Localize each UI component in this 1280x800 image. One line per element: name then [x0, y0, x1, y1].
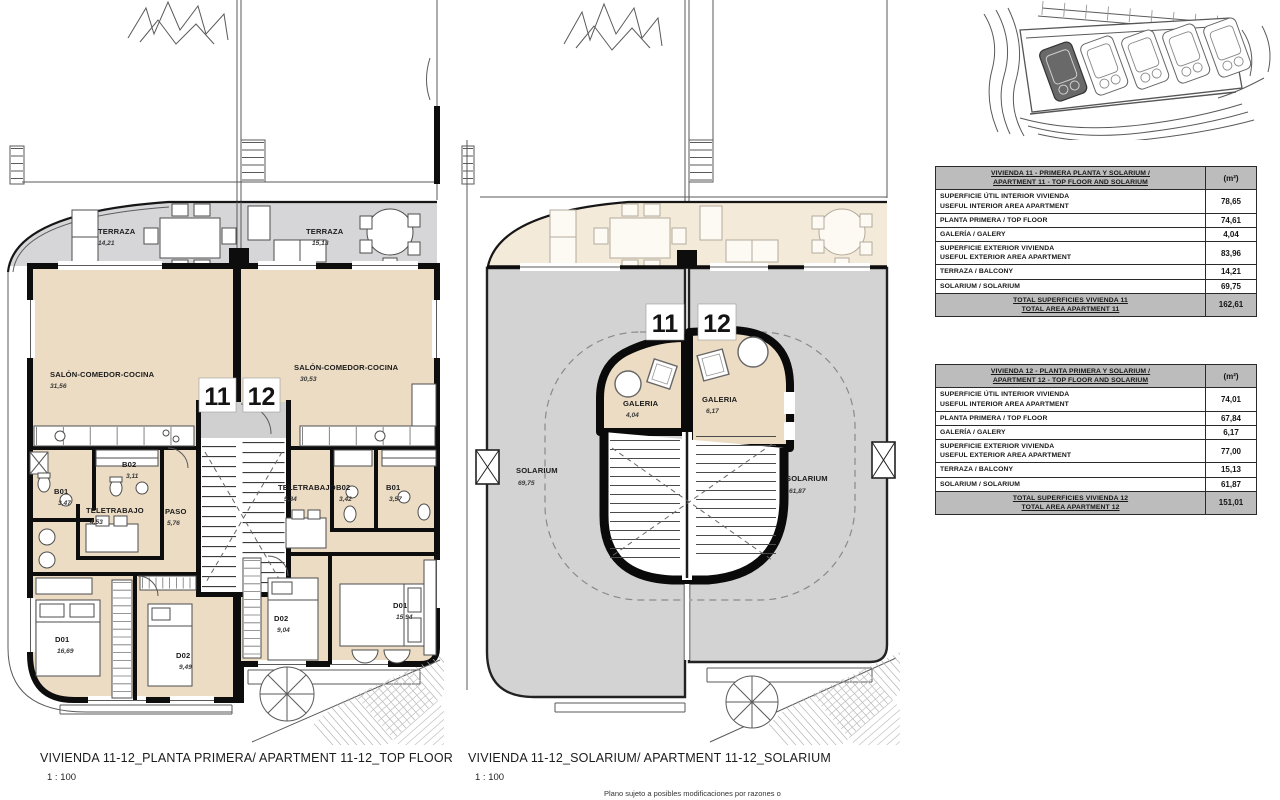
room-area-d02-11: 9,49 [179, 664, 192, 671]
room-label-teletrabajo-12: TELETRABAJO [278, 483, 336, 492]
scale-solarium: 1 : 100 [475, 772, 504, 783]
room-area-salon-12: 30,53 [300, 376, 317, 383]
exterior-stairs [10, 140, 265, 184]
room-area-b02-11: 3,11 [126, 473, 139, 480]
row-value: 69,75 [1206, 279, 1257, 293]
room-label-teletrabajo-11: TELETRABAJO [86, 506, 144, 515]
party-wall-end [677, 250, 697, 266]
scale-top-floor: 1 : 100 [47, 772, 76, 783]
row-label: SOLARIUM / SOLARIUM [940, 480, 1201, 489]
skylight-round-11 [615, 371, 641, 397]
room-label-d01-11: D01 [55, 635, 70, 644]
solarium-plan: 11 12 GALERIA 4,04 GALERIA 6,17 SOLARIUM… [460, 0, 920, 745]
row-label: USEFUL INTERIOR AREA APARTMENT [940, 202, 1201, 211]
boundary-wall-stub [434, 106, 440, 184]
room-area-paso-11: 5,76 [167, 520, 180, 527]
row-value: 74,01 [1206, 388, 1257, 411]
table-row: TERRAZA / BALCONY 15,13 [936, 463, 1257, 477]
row-label: TERRAZA / BALCONY [940, 267, 1201, 276]
shaft-marker [30, 452, 48, 474]
row-label: USEFUL INTERIOR AREA APARTMENT [940, 400, 1201, 409]
table-title-line2: APARTMENT 12 - TOP FLOOR AND SOLARIUM [940, 376, 1201, 385]
row-label: USEFUL EXTERIOR AREA APARTMENT [940, 451, 1201, 460]
table-row: SUPERFICIE ÚTIL INTERIOR VIVIENDAUSEFUL … [936, 190, 1257, 213]
row-value: 4,04 [1206, 227, 1257, 241]
unit-header: (m²) [1206, 167, 1257, 190]
palm-tree [564, 4, 662, 50]
room-label-solarium-11: SOLARIUM [516, 466, 558, 475]
total-label-line1: TOTAL SUPERFICIES VIVIENDA 11 [940, 296, 1201, 305]
caption-top-floor: VIVIENDA 11-12_PLANTA PRIMERA/ APARTMENT… [40, 751, 453, 765]
room-area-terraza-12: 15,13 [312, 240, 329, 247]
row-value: 14,21 [1206, 265, 1257, 279]
room-area-teletrabajo-11: 4,53 [89, 519, 103, 526]
table-title-line1: VIVIENDA 11 - PRIMERA PLANTA Y SOLARIUM … [940, 169, 1201, 178]
row-label: GALERÍA / GALERY [940, 428, 1201, 437]
caption-solarium: VIVIENDA 11-12_SOLARIUM/ APARTMENT 11-12… [468, 751, 831, 765]
row-value: 67,84 [1206, 411, 1257, 425]
room-area-d01-12: 15,94 [396, 614, 413, 621]
room-area-b01-11: 3,47 [58, 500, 71, 507]
room-label-paso-11: PASO [165, 507, 187, 516]
room-label-solarium-12: SOLARIUM [786, 474, 828, 483]
total-value: 162,61 [1206, 293, 1257, 316]
table-row: PLANTA PRIMERA / TOP FLOOR 74,61 [936, 213, 1257, 227]
row-value: 61,87 [1206, 477, 1257, 491]
table-row: GALERÍA / GALERY 4,04 [936, 227, 1257, 241]
garden-tree [260, 667, 314, 721]
row-value: 83,96 [1206, 242, 1257, 265]
row-label: PLANTA PRIMERA / TOP FLOOR [940, 216, 1201, 225]
area-table-apartment-12: VIVIENDA 12 - PLANTA PRIMERA Y SOLARIUM … [935, 364, 1257, 515]
total-value: 151,01 [1206, 491, 1257, 514]
skylight-round-12 [738, 337, 768, 367]
row-value: 6,17 [1206, 425, 1257, 439]
row-value: 15,13 [1206, 463, 1257, 477]
room-label-b02-11: B02 [122, 460, 136, 469]
row-label: SUPERFICIE EXTERIOR VIVIENDA [940, 442, 1201, 451]
kitchen-counter-11 [34, 426, 194, 446]
galeria-structure [600, 330, 795, 448]
room-area-b02-12: 3,42 [339, 496, 352, 503]
room-label-d01-12: D01 [393, 601, 408, 610]
room-label-salon-12: SALÓN-COMEDOR-COCINA [294, 363, 399, 372]
table-row: SOLARIUM / SOLARIUM 69,75 [936, 279, 1257, 293]
garden-tree [726, 676, 778, 728]
room-area-salon-11: 31,56 [50, 383, 67, 390]
table-title: VIVIENDA 11 - PRIMERA PLANTA Y SOLARIUM … [936, 167, 1206, 190]
total-label-line2: TOTAL AREA APARTMENT 11 [940, 305, 1201, 314]
table-title: VIVIENDA 12 - PLANTA PRIMERA Y SOLARIUM … [936, 365, 1206, 388]
room-area-d02-12: 9,04 [277, 627, 290, 634]
unit-header: (m²) [1206, 365, 1257, 388]
room-label-galeria-12: GALERIA [702, 395, 738, 404]
total-label-line1: TOTAL SUPERFICIES VIVIENDA 12 [940, 494, 1201, 503]
table-row: SOLARIUM / SOLARIUM 61,87 [936, 477, 1257, 491]
row-value: 77,00 [1206, 440, 1257, 463]
room-label-b02-12: B02 [336, 483, 350, 492]
room-area-d01-11: 16,69 [57, 648, 74, 655]
room-area-terraza-11: 14,21 [98, 240, 115, 247]
room-label-d02-12: D02 [274, 614, 288, 623]
row-label: SOLARIUM / SOLARIUM [940, 282, 1201, 291]
room-area-galeria-12: 6,17 [706, 408, 719, 415]
room-label-d02-11: D02 [176, 651, 190, 660]
room-area-teletrabajo-12: 5,34 [284, 496, 297, 503]
row-label: TERRAZA / BALCONY [940, 465, 1201, 474]
galeria-window [784, 392, 795, 414]
disclaimer-note: Plano sujeto a posibles modificaciones p… [604, 789, 781, 798]
row-label: SUPERFICIE ÚTIL INTERIOR VIVIENDA [940, 192, 1201, 201]
galeria-window [784, 422, 795, 440]
table-title-line2: APARTMENT 11 - TOP FLOOR AND SOLARIUM [940, 178, 1201, 187]
site-location-map [980, 0, 1280, 140]
room-area-solarium-11: 69,75 [518, 480, 535, 487]
row-label: SUPERFICIE EXTERIOR VIVIENDA [940, 244, 1201, 253]
table-title-line1: VIVIENDA 12 - PLANTA PRIMERA Y SOLARIUM … [940, 367, 1201, 376]
row-label: USEFUL EXTERIOR AREA APARTMENT [940, 253, 1201, 262]
table-row: TERRAZA / BALCONY 14,21 [936, 265, 1257, 279]
room-area-galeria-11: 4,04 [625, 412, 639, 419]
room-area-b01-12: 3,57 [389, 496, 402, 503]
palm-tree [128, 2, 228, 44]
area-table-apartment-11: VIVIENDA 11 - PRIMERA PLANTA Y SOLARIUM … [935, 166, 1257, 317]
row-value: 74,61 [1206, 213, 1257, 227]
row-label: SUPERFICIE ÚTIL INTERIOR VIVIENDA [940, 390, 1201, 399]
unit-badge-11: 11 [652, 310, 679, 338]
table-total-row: TOTAL SUPERFICIES VIVIENDA 12 TOTAL AREA… [936, 491, 1257, 514]
row-label: GALERÍA / GALERY [940, 230, 1201, 239]
unit-badge-11: 11 [204, 383, 231, 411]
row-label: PLANTA PRIMERA / TOP FLOOR [940, 414, 1201, 423]
table-row: SUPERFICIE EXTERIOR VIVIENDAUSEFUL EXTER… [936, 242, 1257, 265]
stairwell [604, 432, 784, 580]
room-label-b01-11: B01 [54, 487, 69, 496]
room-label-galeria-11: GALERIA [623, 399, 659, 408]
table-row: SUPERFICIE ÚTIL INTERIOR VIVIENDAUSEFUL … [936, 388, 1257, 411]
table-row: SUPERFICIE EXTERIOR VIVIENDAUSEFUL EXTER… [936, 440, 1257, 463]
table-row: GALERÍA / GALERY 6,17 [936, 425, 1257, 439]
room-label-salon-11: SALÓN-COMEDOR-COCINA [50, 370, 155, 379]
top-floor-plan: 11 12 TERRAZA 14,21 TERRAZA 15,13 SALÓN-… [0, 0, 460, 745]
room-label-b01-12: B01 [386, 483, 401, 492]
room-label-terraza-11: TERRAZA [98, 227, 136, 236]
unit-badge-12: 12 [248, 383, 276, 411]
table-total-row: TOTAL SUPERFICIES VIVIENDA 11 TOTAL AREA… [936, 293, 1257, 316]
skylight-square-12 [697, 349, 729, 381]
room-area-solarium-12: 61,87 [789, 488, 806, 495]
exterior-stairs [462, 140, 713, 184]
total-label-line2: TOTAL AREA APARTMENT 12 [940, 503, 1201, 512]
unit-badge-12: 12 [703, 310, 731, 338]
table-row: PLANTA PRIMERA / TOP FLOOR 67,84 [936, 411, 1257, 425]
room-label-terraza-12: TERRAZA [306, 227, 344, 236]
row-value: 78,65 [1206, 190, 1257, 213]
